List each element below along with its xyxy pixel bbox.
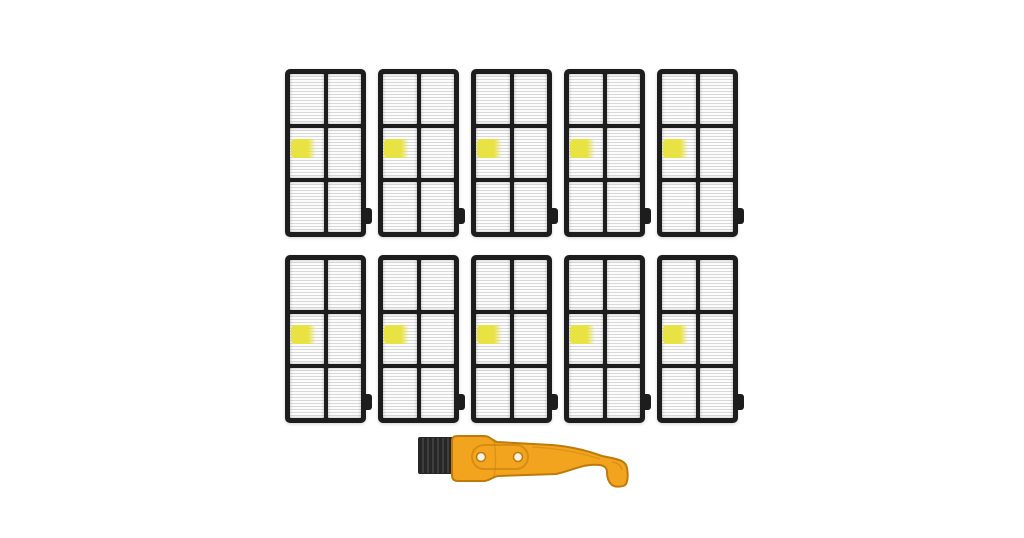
- yellow-sticker: [291, 139, 316, 158]
- filter-cell: [607, 128, 641, 178]
- filter-cell: [700, 128, 734, 178]
- hepa-filter: [657, 69, 738, 237]
- yellow-sticker: [570, 139, 595, 158]
- filter-cell: [700, 368, 734, 418]
- filter-cell: [328, 260, 362, 310]
- filter-cell: [383, 182, 417, 232]
- hepa-filter: [378, 255, 459, 423]
- filter-cell: [476, 182, 510, 232]
- filter-cell: [421, 128, 455, 178]
- filter-cell: [328, 368, 362, 418]
- hepa-filter: [471, 255, 552, 423]
- yellow-sticker: [291, 325, 316, 344]
- yellow-sticker: [663, 139, 688, 158]
- filter-cell: [700, 74, 734, 124]
- filter-cell: [700, 182, 734, 232]
- filter-pull-tab: [737, 208, 744, 224]
- filter-cell: [662, 74, 696, 124]
- filter-cell: [328, 128, 362, 178]
- hepa-filter: [564, 69, 645, 237]
- filter-cell: [383, 368, 417, 418]
- filter-cell: [569, 368, 603, 418]
- filter-cell: [383, 74, 417, 124]
- filter-row-top: [285, 69, 738, 237]
- filter-cell: [476, 74, 510, 124]
- filter-cell: [569, 74, 603, 124]
- brush-handle: [452, 436, 628, 487]
- filter-cell: [514, 182, 548, 232]
- hepa-filter: [564, 255, 645, 423]
- filter-cell: [514, 74, 548, 124]
- filter-cell: [476, 368, 510, 418]
- filter-cell: [700, 314, 734, 364]
- filter-cell: [383, 260, 417, 310]
- filter-cell: [514, 368, 548, 418]
- filter-cell: [290, 260, 324, 310]
- filter-cell: [514, 128, 548, 178]
- filter-pull-tab: [644, 394, 651, 410]
- hepa-filter: [285, 69, 366, 237]
- filter-cell: [700, 260, 734, 310]
- filter-cell: [421, 368, 455, 418]
- filter-pull-tab: [644, 208, 651, 224]
- filter-pull-tab: [458, 208, 465, 224]
- filter-cell: [607, 74, 641, 124]
- filter-cell: [328, 182, 362, 232]
- filter-pull-tab: [551, 394, 558, 410]
- brush-hole: [477, 453, 486, 462]
- filter-cell: [569, 182, 603, 232]
- yellow-sticker: [384, 325, 409, 344]
- filter-cell: [607, 260, 641, 310]
- filter-cell: [290, 368, 324, 418]
- filter-cell: [421, 182, 455, 232]
- filter-cell: [569, 260, 603, 310]
- yellow-sticker: [477, 325, 502, 344]
- hepa-filter: [285, 255, 366, 423]
- filter-cell: [421, 74, 455, 124]
- filter-cell: [290, 182, 324, 232]
- filter-cell: [607, 368, 641, 418]
- filter-cell: [662, 260, 696, 310]
- filter-cell: [290, 74, 324, 124]
- product-photo: [0, 0, 1024, 538]
- filter-pull-tab: [458, 394, 465, 410]
- filter-row-bottom: [285, 255, 738, 423]
- filter-cell: [421, 260, 455, 310]
- filter-cell: [662, 182, 696, 232]
- filter-cell: [514, 260, 548, 310]
- filter-cell: [421, 314, 455, 364]
- filter-cell: [328, 314, 362, 364]
- cleaning-brush: [416, 432, 630, 492]
- filter-cell: [476, 260, 510, 310]
- filter-cell: [514, 314, 548, 364]
- filter-pull-tab: [737, 394, 744, 410]
- yellow-sticker: [570, 325, 595, 344]
- filter-cell: [328, 74, 362, 124]
- yellow-sticker: [477, 139, 502, 158]
- filter-cell: [607, 314, 641, 364]
- filter-cell: [662, 368, 696, 418]
- brush-hole: [514, 453, 523, 462]
- hepa-filter: [657, 255, 738, 423]
- hepa-filter: [378, 69, 459, 237]
- yellow-sticker: [384, 139, 409, 158]
- yellow-sticker: [663, 325, 688, 344]
- filter-cell: [607, 182, 641, 232]
- filter-pull-tab: [365, 394, 372, 410]
- hepa-filter: [471, 69, 552, 237]
- filter-pull-tab: [551, 208, 558, 224]
- filter-pull-tab: [365, 208, 372, 224]
